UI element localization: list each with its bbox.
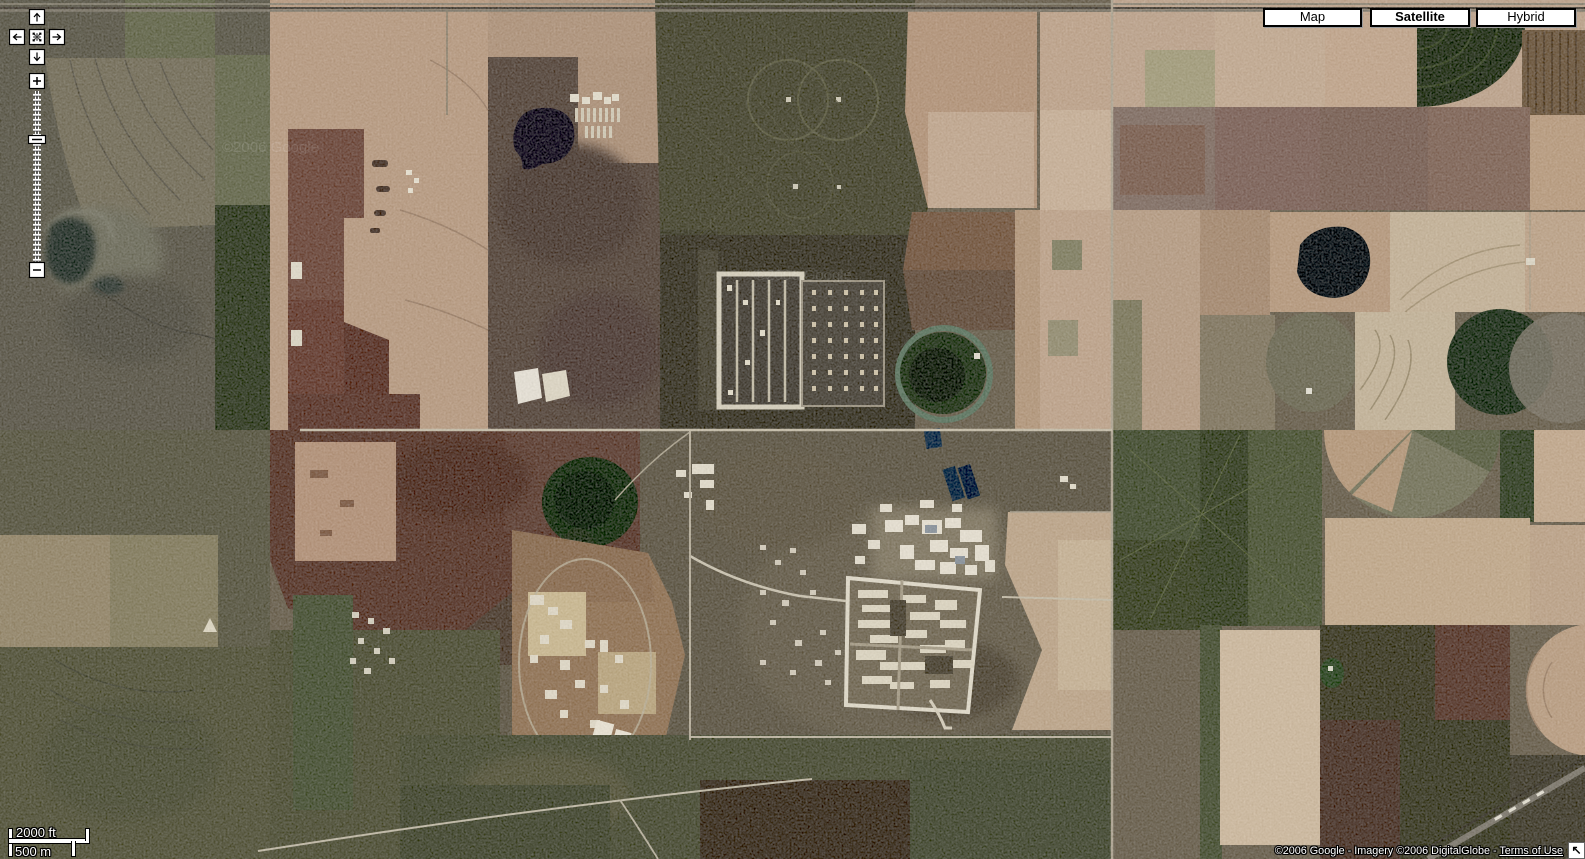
- svg-text:©2006 Google: ©2006 Google: [755, 267, 852, 284]
- svg-text:©2006 Google: ©2006 Google: [222, 139, 319, 156]
